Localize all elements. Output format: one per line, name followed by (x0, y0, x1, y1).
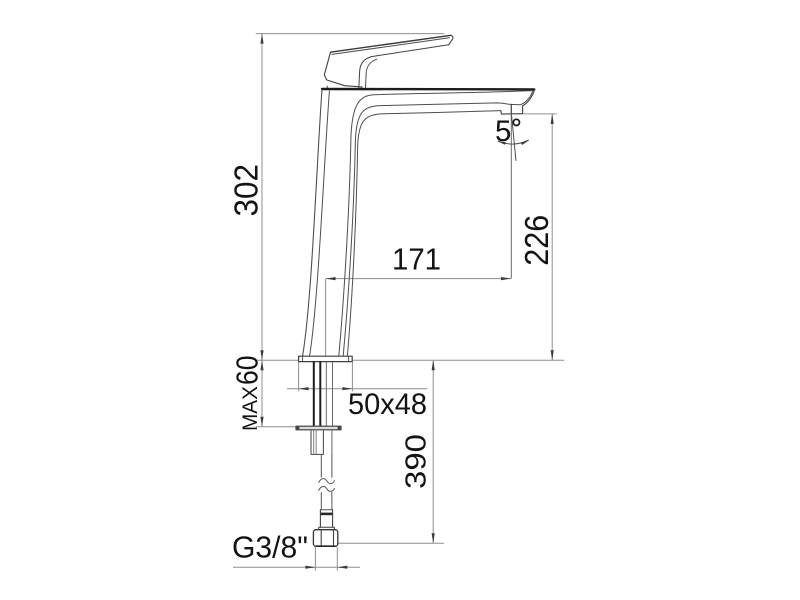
svg-text:MAX: MAX (239, 386, 262, 431)
svg-text:5: 5 (495, 115, 511, 148)
svg-text:50x48: 50x48 (348, 388, 427, 421)
svg-text:171: 171 (392, 243, 441, 277)
svg-text:G3/8": G3/8" (232, 530, 308, 565)
svg-text:302: 302 (228, 164, 265, 217)
svg-text:226: 226 (518, 215, 555, 266)
svg-text:60: 60 (230, 356, 265, 386)
svg-text:390: 390 (401, 434, 433, 489)
